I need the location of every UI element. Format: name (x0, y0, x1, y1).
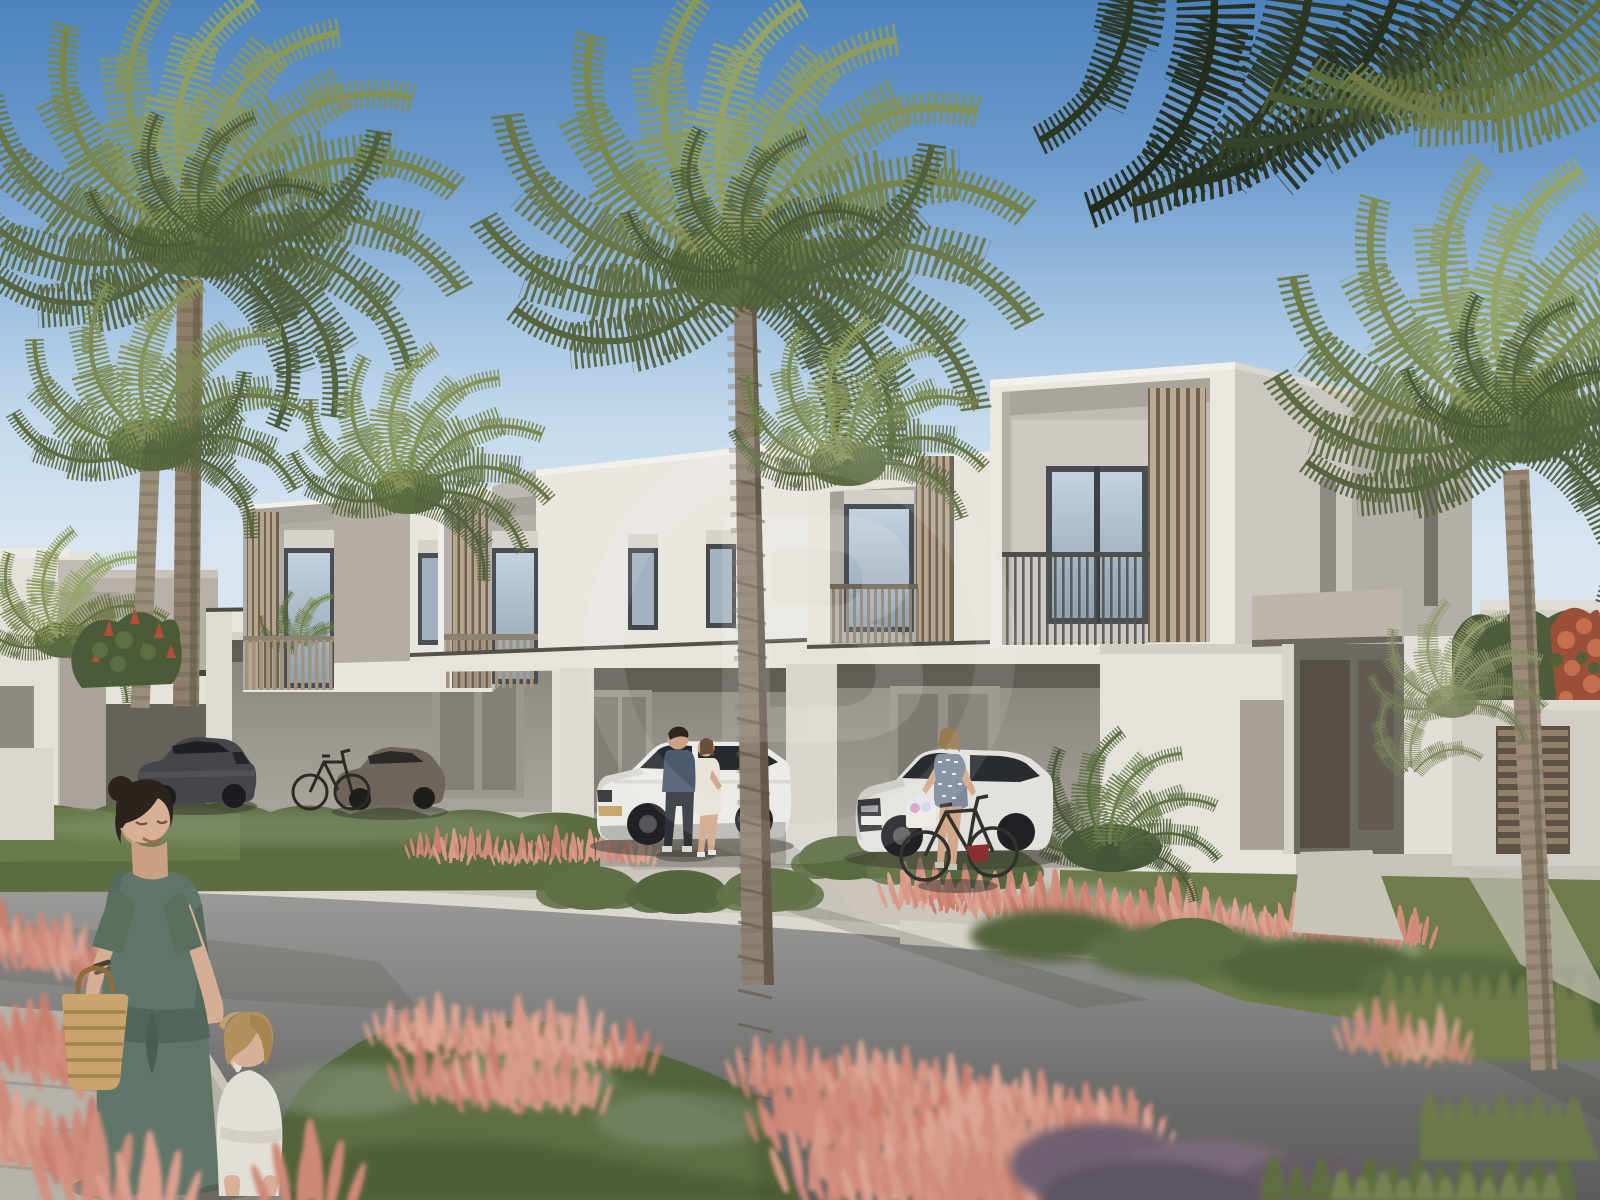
svg-text:B: B (700, 443, 938, 812)
